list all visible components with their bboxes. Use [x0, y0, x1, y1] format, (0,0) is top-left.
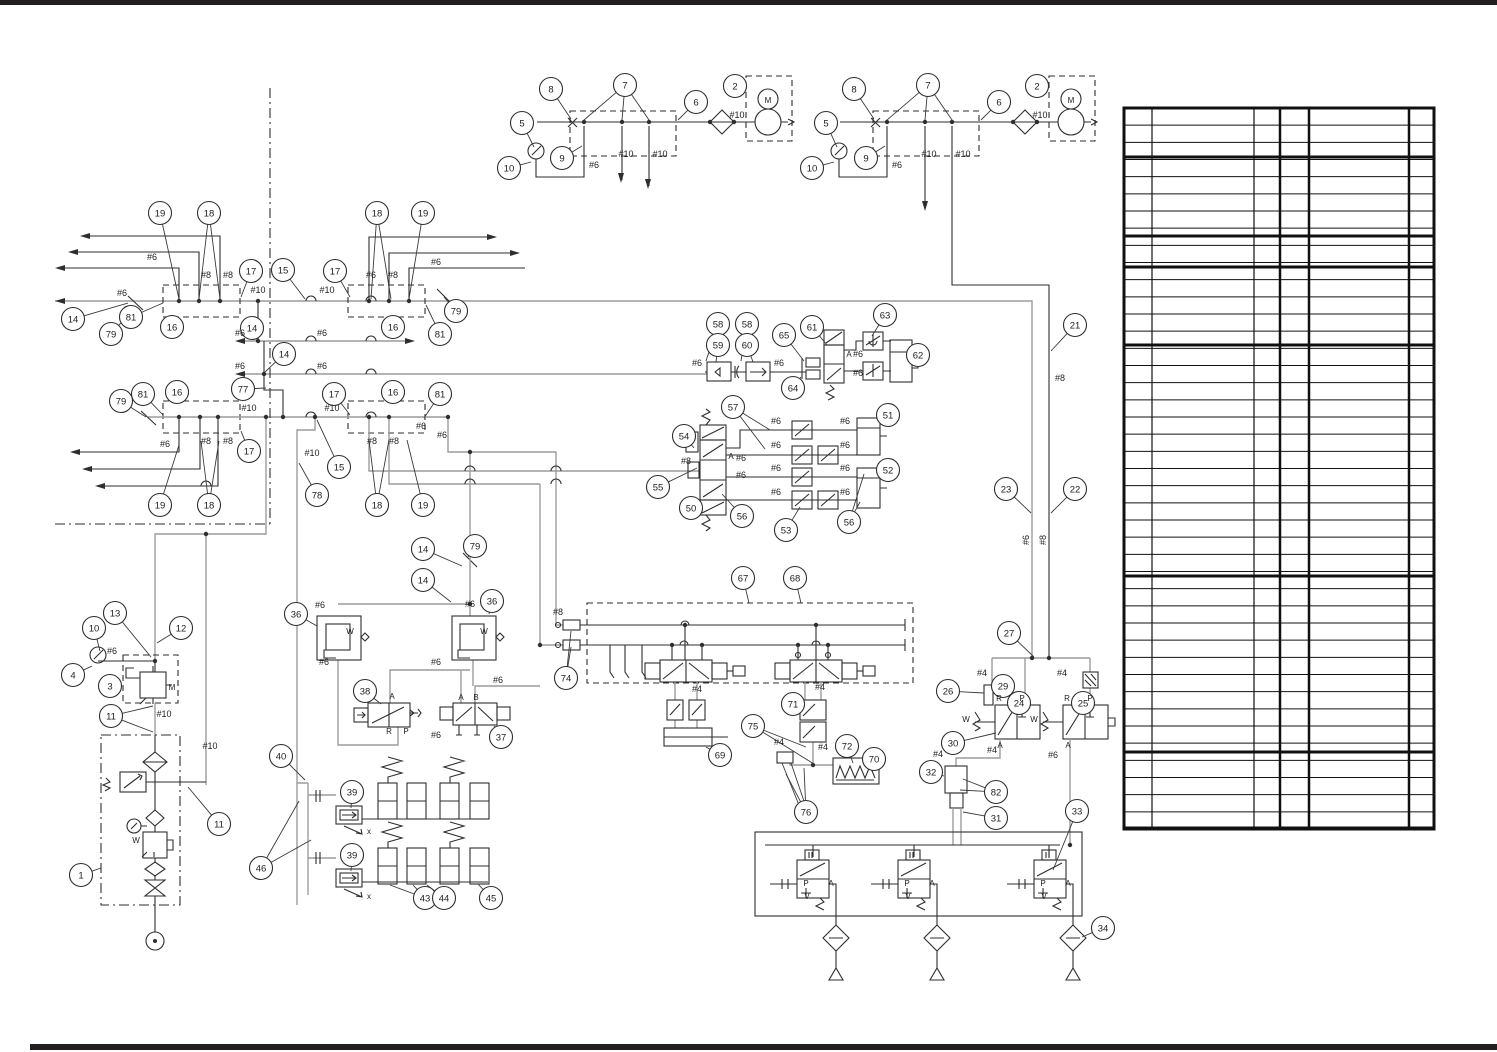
tube-size-label: #10: [304, 448, 319, 458]
balloon-number: 16: [388, 387, 399, 398]
balloon-number: 60: [742, 340, 753, 351]
port-letter: A: [728, 452, 734, 461]
tube-size-label: #10: [202, 741, 217, 751]
top-border-bar: [0, 0, 1497, 5]
tube-size-label: #10: [1032, 110, 1047, 120]
balloon-number: 2: [732, 81, 737, 92]
port-letter: A: [389, 692, 395, 701]
balloon-number: 29: [998, 681, 1009, 692]
balloon-number: 14: [279, 349, 290, 360]
balloon-number: 19: [418, 208, 429, 219]
tube-size-label: #8: [223, 436, 233, 446]
port-letter: x: [367, 827, 371, 836]
balloon-number: 53: [781, 525, 792, 536]
balloon-number: 9: [559, 153, 564, 164]
tube-size-label: #6: [840, 440, 850, 450]
leader-line: [317, 420, 334, 457]
leader-line: [823, 162, 834, 165]
port-letter: V: [905, 892, 911, 901]
leader-line: [860, 99, 874, 119]
balloon-number: 8: [851, 84, 856, 95]
balloon-number: 19: [418, 500, 429, 511]
leader-line: [804, 768, 805, 801]
tube-size-label: #4: [933, 749, 943, 759]
leader-line: [959, 692, 984, 693]
tube-size-label: #6: [160, 439, 170, 449]
leader-line: [791, 344, 804, 361]
leader-line: [271, 840, 311, 862]
port-letter: A: [828, 879, 834, 888]
leader-line: [341, 403, 350, 415]
tube-size-label: #8: [223, 270, 233, 280]
balloon-number: 17: [330, 266, 341, 277]
leader-line: [876, 146, 885, 152]
leader-line: [92, 868, 101, 871]
port-letter: W: [1030, 715, 1038, 724]
balloon-number: 13: [110, 608, 121, 619]
leader-line: [584, 92, 616, 120]
leader-line: [299, 463, 311, 485]
balloon-number: 14: [418, 575, 429, 586]
tube-size-label: #6: [319, 657, 329, 667]
balloon-number: 17: [244, 446, 255, 457]
leader-line: [254, 388, 266, 389]
balloon-number: 79: [106, 329, 117, 340]
tube-size-label: #6: [736, 470, 746, 480]
leader-line: [122, 706, 153, 713]
port-letter: M: [169, 683, 176, 692]
leader-line: [1014, 497, 1031, 513]
leader-line: [1082, 933, 1092, 937]
leader-line: [390, 885, 414, 894]
leader-line: [798, 589, 801, 603]
balloon-number: 44: [439, 893, 450, 904]
tube-size-label: #6: [771, 416, 781, 426]
leader-line: [122, 622, 151, 657]
leader-line: [290, 279, 305, 299]
balloon-number: 8: [548, 84, 553, 95]
balloon-number: 14: [68, 314, 79, 325]
balloon-number: 75: [748, 721, 759, 732]
balloon-number: 81: [126, 312, 137, 323]
leader-line: [306, 620, 317, 626]
tube-size-label: #6: [853, 349, 863, 359]
leader-line: [872, 325, 879, 336]
balloon-number: 23: [1001, 484, 1012, 495]
tube-size-label: #6: [589, 160, 599, 170]
port-letter: V: [804, 892, 810, 901]
balloon-number: 68: [790, 573, 801, 584]
leader-line: [188, 787, 212, 815]
tube-size-label: #4: [987, 745, 997, 755]
balloon-number: 36: [291, 609, 302, 620]
leader-line: [691, 445, 694, 448]
leader-line: [572, 146, 582, 152]
balloon-number: 6: [996, 97, 1001, 108]
balloon-number: 5: [823, 118, 828, 129]
tube-size-label: #10: [156, 709, 171, 719]
balloon-number: 78: [312, 490, 323, 501]
tube-size-label: #6: [465, 599, 475, 609]
leader-line: [122, 720, 153, 732]
port-letter: M: [765, 96, 772, 105]
balloon-number: 50: [686, 503, 697, 514]
tube-size-label: #6: [1021, 535, 1031, 545]
balloon-number: 69: [715, 750, 726, 761]
tube-size-label: #4: [815, 682, 825, 692]
tube-size-label: #6: [437, 430, 447, 440]
tube-size-label: #6: [493, 675, 503, 685]
balloon-number: 57: [728, 402, 739, 413]
balloon-number: 37: [496, 732, 507, 743]
tube-size-label: #10: [250, 285, 265, 295]
balloon-number: 81: [435, 389, 446, 400]
leader-line: [740, 416, 765, 449]
balloon-number: 51: [883, 410, 894, 421]
balloon-number: 33: [1072, 806, 1083, 817]
tube-size-label: #4: [1057, 668, 1067, 678]
balloon-number: 18: [372, 208, 383, 219]
balloon-number: 81: [138, 389, 149, 400]
port-letter: P: [403, 727, 408, 736]
leader-line: [887, 92, 919, 120]
balloon-number: 43: [420, 893, 431, 904]
balloon-number: 76: [801, 807, 812, 818]
balloon-number: 62: [913, 350, 924, 361]
balloon-number: 22: [1070, 484, 1081, 495]
tube-size-label: #10: [921, 149, 936, 159]
balloon-number: 14: [418, 544, 429, 555]
leader-line: [371, 224, 376, 299]
port-letter: P: [1087, 694, 1092, 703]
balloon-number: 5: [519, 118, 524, 129]
leader-line: [97, 639, 100, 651]
tube-size-label: #6: [315, 600, 325, 610]
leader-line: [960, 790, 985, 791]
leader-line: [434, 554, 462, 566]
balloon-number: 17: [329, 389, 340, 400]
port-letter: R: [386, 727, 392, 736]
balloon-number: 10: [89, 623, 100, 634]
tube-size-label: #10: [241, 403, 256, 413]
balloon-number: 12: [176, 623, 187, 634]
tube-size-label: #6: [771, 440, 781, 450]
tube-size-label: #6: [235, 361, 245, 371]
leader-line: [632, 94, 649, 120]
balloon-number: 67: [738, 573, 749, 584]
leader-line: [963, 812, 985, 816]
port-letter: A: [458, 693, 464, 702]
port-letter: W: [346, 627, 354, 636]
balloon-number: 15: [334, 462, 345, 473]
leader-line: [935, 94, 952, 120]
balloon-number: 19: [155, 500, 166, 511]
tube-size-label: #6: [235, 328, 245, 338]
pneumatic-diagram: 5876210958762109191817151479811618191716…: [0, 0, 1497, 1052]
leader-line: [142, 303, 163, 312]
balloon-number: 16: [167, 322, 178, 333]
balloon-number: 26: [943, 686, 954, 697]
tube-size-label: #6: [771, 487, 781, 497]
balloon-number: 71: [788, 699, 799, 710]
port-letter: V: [1041, 892, 1047, 901]
leader-line: [706, 747, 710, 749]
balloon-number: 40: [276, 751, 287, 762]
balloon-number: 6: [693, 97, 698, 108]
balloon-number: 10: [807, 163, 818, 174]
leader-line: [622, 96, 624, 120]
port-letter: A: [929, 879, 935, 888]
leader-line: [716, 356, 717, 362]
leader-line: [407, 440, 420, 494]
balloon-number: 4: [70, 670, 75, 681]
leader-line: [241, 282, 247, 297]
leader-line: [409, 224, 421, 299]
balloon-number: 11: [106, 711, 116, 722]
balloon-number: 31: [991, 813, 1002, 824]
balloon-number: 18: [204, 500, 215, 511]
balloon-number: 7: [925, 80, 930, 91]
leader-line: [478, 884, 483, 890]
balloon-number: 15: [278, 265, 289, 276]
balloon-number: 56: [737, 511, 748, 522]
balloon-number: 9: [863, 153, 868, 164]
balloon-number: 65: [779, 330, 790, 341]
tube-size-label: #8: [388, 270, 398, 280]
balloon-number: 16: [172, 387, 183, 398]
tube-size-label: #8: [201, 436, 211, 446]
tube-size-label: #6: [736, 453, 746, 463]
tube-size-label: #6: [107, 646, 117, 656]
balloon-number: 81: [435, 329, 446, 340]
balloon-number: 11: [214, 819, 224, 830]
balloon-number: 55: [653, 482, 664, 493]
leader-line: [162, 224, 179, 299]
tube-size-label: #10: [319, 285, 334, 295]
port-letter: A: [1065, 879, 1071, 888]
balloon-number: 46: [256, 863, 267, 874]
balloon-number: 39: [347, 787, 358, 798]
balloon-number: 56: [844, 517, 855, 528]
bottom-border-bar: [30, 1044, 1497, 1050]
tube-size-label: #4: [774, 737, 784, 747]
balloon-number: 61: [807, 322, 818, 333]
tube-size-label: #6: [431, 730, 441, 740]
balloon-number: 18: [372, 500, 383, 511]
tube-size-label: #6: [366, 270, 376, 280]
tube-size-label: #6: [1048, 750, 1058, 760]
tube-size-label: #6: [692, 358, 702, 368]
schematic-sheet: 5876210958762109191817151479811618191716…: [0, 0, 1497, 1052]
balloon-number: 19: [155, 208, 166, 219]
leader-line: [83, 666, 92, 670]
balloon-number: 70: [869, 754, 880, 765]
balloon-number: 1: [78, 870, 83, 881]
leader-line: [763, 732, 814, 764]
tube-size-label: #10: [729, 110, 744, 120]
balloon-number: 79: [451, 306, 462, 317]
port-letter: R: [996, 694, 1002, 703]
balloon-number: 7: [622, 80, 627, 91]
tube-size-label: #6: [317, 328, 327, 338]
balloon-number: 30: [948, 738, 959, 749]
balloon-number: 79: [470, 541, 481, 552]
balloon-number: 45: [486, 893, 497, 904]
balloon-number: 10: [504, 163, 515, 174]
leader-line: [557, 99, 571, 119]
balloon-number: 54: [679, 431, 690, 442]
leader-line: [151, 402, 163, 415]
leader-line: [341, 281, 350, 297]
leader-line: [379, 440, 389, 494]
balloon-number: 14: [247, 323, 258, 334]
balloon-number: 63: [880, 310, 891, 321]
port-letter: P: [1040, 879, 1045, 888]
leader-line: [819, 336, 827, 345]
leader-line: [743, 413, 770, 430]
tube-size-label: #6: [117, 288, 127, 298]
balloon-number: 74: [561, 673, 572, 684]
tube-size-label: #6: [317, 361, 327, 371]
tube-size-label: #6: [774, 358, 784, 368]
balloon-number: 18: [204, 208, 215, 219]
balloon-number: 21: [1070, 320, 1081, 331]
tube-size-label: #8: [1055, 373, 1065, 383]
tube-size-label: #6: [416, 421, 426, 431]
balloon-number: 2: [1034, 81, 1039, 92]
leader-line: [157, 634, 171, 643]
port-letter: P: [803, 879, 808, 888]
tube-size-label: #8: [681, 456, 691, 466]
tube-size-label: #10: [324, 403, 339, 413]
balloon-number: 34: [1098, 923, 1109, 934]
tube-size-label: #6: [840, 487, 850, 497]
port-letter: B: [473, 693, 478, 702]
leader-line: [241, 431, 245, 440]
tube-size-label: #10: [652, 149, 667, 159]
leader-line: [432, 587, 451, 602]
port-letter: A: [997, 741, 1003, 750]
balloon-number: 59: [713, 340, 724, 351]
leader-line: [1051, 333, 1067, 351]
balloon-number: 16: [388, 322, 399, 333]
leader-line: [668, 468, 697, 482]
balloon-number: 79: [116, 396, 127, 407]
port-letter: P: [1019, 694, 1024, 703]
leader-line: [925, 96, 927, 120]
tube-size-label: #6: [840, 416, 850, 426]
port-letter: A: [1065, 741, 1071, 750]
balloon-number: 58: [742, 319, 753, 330]
balloon-number: 36: [487, 596, 498, 607]
balloon-number: 3: [107, 681, 112, 692]
leader-line: [678, 110, 688, 120]
leader-line: [746, 589, 749, 603]
tube-size-label: #6: [892, 160, 902, 170]
leader-line: [520, 162, 531, 165]
leader-line: [131, 407, 146, 417]
tube-size-label: #8: [1038, 535, 1048, 545]
leader-line: [751, 356, 753, 362]
leader-line: [413, 885, 417, 890]
balloon-number: 72: [842, 741, 853, 752]
tube-size-label: #4: [977, 668, 987, 678]
balloon-leader-lines: [83, 92, 1092, 937]
balloon-number: 32: [926, 767, 937, 778]
tube-size-label: #8: [389, 436, 399, 446]
parts-list-table: [1124, 108, 1434, 829]
tube-size-label: #6: [431, 657, 441, 667]
balloon-number: 17: [246, 266, 257, 277]
balloon-number: 58: [713, 319, 724, 330]
balloon-number: 27: [1004, 628, 1015, 639]
tube-size-label: #10: [618, 149, 633, 159]
port-letter: R: [1064, 694, 1070, 703]
tube-size-label: #8: [201, 270, 211, 280]
port-letter: x: [367, 892, 371, 901]
port-letter: W: [962, 715, 970, 724]
balloon-callouts: 5876210958762109191817151479811618191716…: [62, 74, 1115, 940]
tube-size-label: #4: [818, 742, 828, 752]
leader-line: [963, 779, 985, 788]
leader-line: [786, 774, 801, 802]
port-letter: A: [846, 350, 852, 359]
leader-line: [722, 494, 734, 507]
balloon-number: 52: [883, 465, 894, 476]
port-letter: P: [904, 879, 909, 888]
tube-size-label: #4: [692, 684, 702, 694]
port-letter: W: [132, 836, 140, 845]
tube-size-label: #6: [431, 257, 441, 267]
balloon-number: 38: [360, 686, 371, 697]
balloon-number: 77: [238, 384, 249, 395]
tube-size-label: #6: [147, 252, 157, 262]
port-letter: M: [1068, 96, 1075, 105]
balloon-number: 64: [788, 383, 799, 394]
tube-size-label: #6: [853, 368, 863, 378]
leader-line: [981, 110, 991, 120]
balloon-number: 39: [347, 850, 358, 861]
leader-line: [426, 305, 435, 324]
leader-line: [369, 440, 376, 494]
tube-size-label: #8: [367, 436, 377, 446]
port-letter: W: [480, 627, 488, 636]
balloon-number: 82: [991, 787, 1002, 798]
leader-line: [964, 733, 996, 740]
tube-size-label: #6: [840, 463, 850, 473]
tube-size-label: #10: [955, 149, 970, 159]
tube-size-label: #8: [553, 607, 563, 617]
leader-line: [1051, 497, 1067, 513]
tube-size-label: #6: [771, 463, 781, 473]
